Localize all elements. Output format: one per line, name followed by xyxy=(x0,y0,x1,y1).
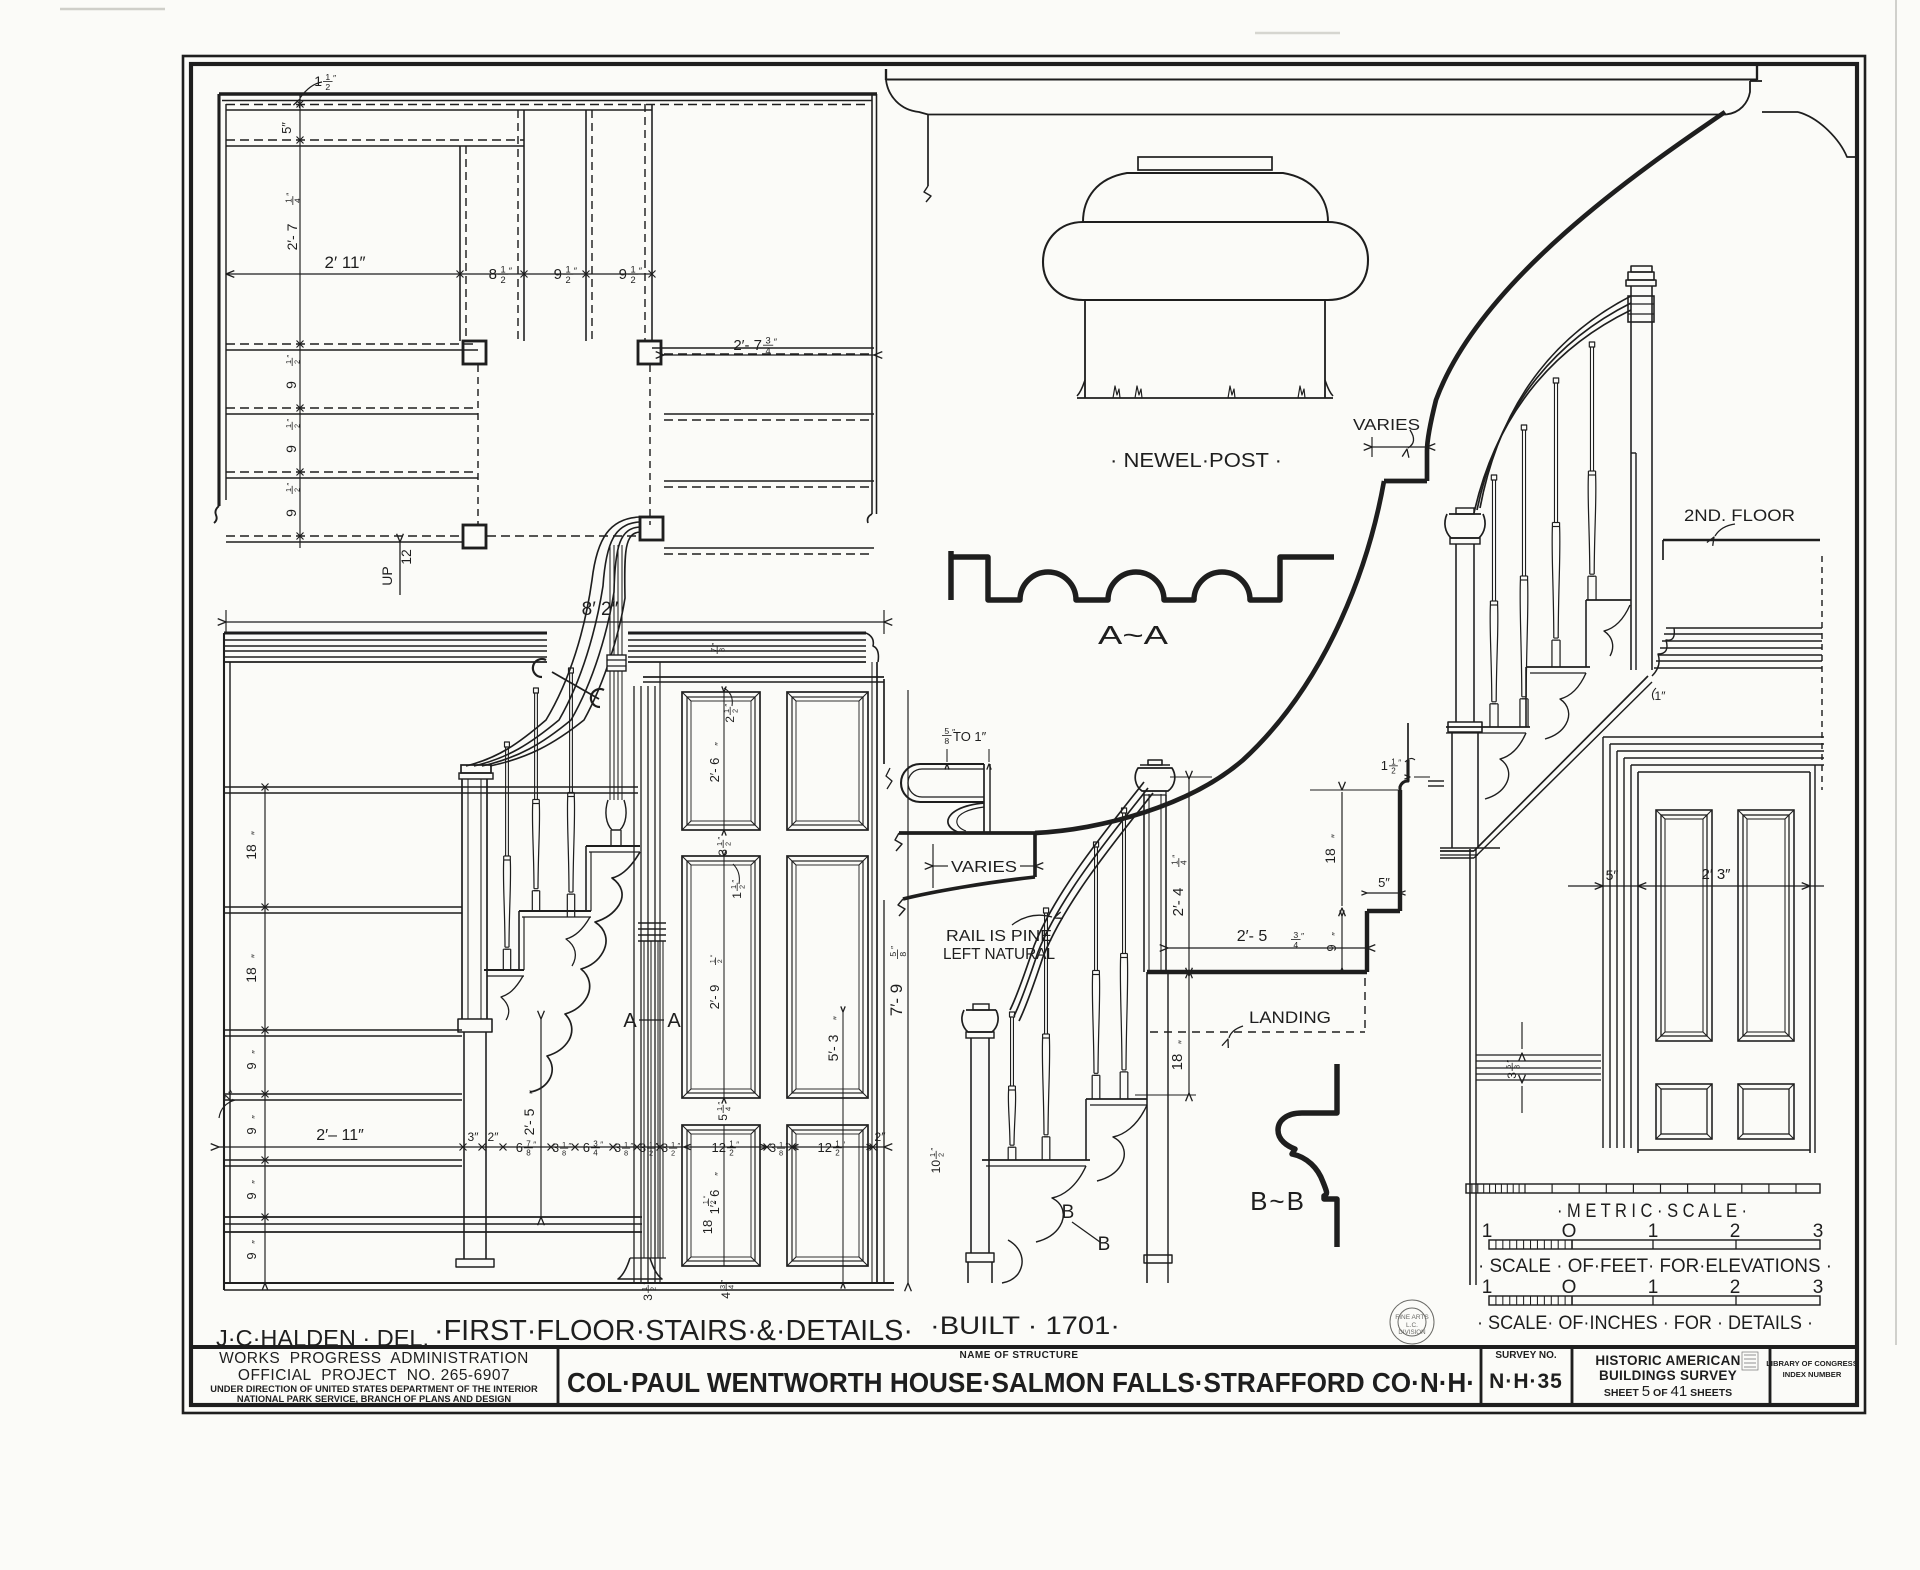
svg-text:1: 1 xyxy=(1648,1221,1659,1242)
svg-text:L.C.: L.C. xyxy=(1406,1322,1418,1329)
svg-text:LEFT NATURAL: LEFT NATURAL xyxy=(943,946,1055,963)
svg-text:1: 1 xyxy=(1648,1277,1659,1298)
svg-text:5″: 5″ xyxy=(279,122,294,134)
svg-text:A~A: A~A xyxy=(1098,620,1169,650)
svg-text:5′- 3: 5′- 3 xyxy=(825,1034,841,1061)
svg-text:4: 4 xyxy=(1180,860,1189,865)
svg-text:18: 18 xyxy=(243,967,259,983)
svg-text:12: 12 xyxy=(712,1140,726,1155)
svg-text:A: A xyxy=(623,1010,637,1032)
svg-text:8: 8 xyxy=(624,1148,628,1157)
svg-text:· M E T R I C · S C A L E ·: · M E T R I C · S C A L E · xyxy=(1557,1201,1747,1222)
svg-text:″: ″ xyxy=(285,482,294,485)
svg-text:2″: 2″ xyxy=(488,1130,500,1144)
svg-text:NATIONAL PARK SERVICE, BRANCH: NATIONAL PARK SERVICE, BRANCH OF PLANS A… xyxy=(237,1394,512,1404)
svg-text:5: 5 xyxy=(944,726,949,736)
svg-text:8: 8 xyxy=(1512,1065,1521,1069)
svg-text:″: ″ xyxy=(889,946,899,949)
svg-text:″: ″ xyxy=(929,1147,938,1150)
svg-text:9: 9 xyxy=(283,445,299,453)
svg-text:18: 18 xyxy=(1169,1054,1186,1071)
svg-text:″: ″ xyxy=(285,193,294,196)
svg-text:2′– 11″: 2′– 11″ xyxy=(316,1127,364,1144)
svg-text:″: ″ xyxy=(250,831,262,835)
svg-text:1: 1 xyxy=(631,265,636,275)
svg-text:2: 2 xyxy=(730,709,739,713)
svg-text:″: ″ xyxy=(1171,855,1180,858)
svg-text:RAIL IS PINE: RAIL IS PINE xyxy=(946,928,1052,945)
svg-text:2: 2 xyxy=(1730,1277,1741,1298)
svg-text:8: 8 xyxy=(944,736,949,746)
svg-text:J·C·HALDEN · DEL.: J·C·HALDEN · DEL. xyxy=(216,1325,429,1351)
svg-text:″: ″ xyxy=(631,1141,634,1150)
svg-text:· SCALE· OF·INCHES · FOR · DET: · SCALE· OF·INCHES · FOR · DETAILS · xyxy=(1477,1313,1813,1334)
svg-text:B~B: B~B xyxy=(1250,1186,1306,1216)
svg-text:HISTORIC AMERICAN: HISTORIC AMERICAN xyxy=(1595,1353,1740,1368)
svg-text:″: ″ xyxy=(285,418,294,421)
svg-text:8: 8 xyxy=(526,1149,531,1158)
svg-text:8: 8 xyxy=(562,1148,566,1157)
svg-text:3: 3 xyxy=(641,1294,655,1301)
svg-text:NAME OF STRUCTURE: NAME OF STRUCTURE xyxy=(959,1350,1078,1361)
svg-text:″: ″ xyxy=(569,1141,572,1150)
svg-text:10: 10 xyxy=(929,1160,943,1174)
svg-text:″: ″ xyxy=(714,1172,725,1176)
svg-text:9: 9 xyxy=(554,266,562,283)
svg-text:1: 1 xyxy=(1482,1277,1493,1298)
svg-text:INDEX NUMBER: INDEX NUMBER xyxy=(1783,1370,1842,1379)
svg-text:2: 2 xyxy=(501,275,506,285)
svg-text:2: 2 xyxy=(737,885,746,889)
svg-text:8: 8 xyxy=(779,1148,783,1157)
svg-text:1: 1 xyxy=(1171,860,1180,865)
svg-text:· NEWEL·POST ·: · NEWEL·POST · xyxy=(1110,450,1282,472)
svg-text:2: 2 xyxy=(717,959,724,963)
svg-text:LANDING: LANDING xyxy=(1249,1008,1331,1027)
svg-text:″: ″ xyxy=(251,1115,262,1119)
svg-text:″: ″ xyxy=(1398,758,1401,767)
svg-text:9: 9 xyxy=(244,1127,259,1134)
svg-text:1: 1 xyxy=(730,892,744,899)
svg-text:5″: 5″ xyxy=(1378,875,1390,890)
svg-text:4: 4 xyxy=(726,1285,735,1289)
svg-text:· SCALE · OF·FEET· FOR·ELEVATI: · SCALE · OF·FEET· FOR·ELEVATIONS · xyxy=(1478,1256,1832,1277)
svg-text:18: 18 xyxy=(1322,848,1338,864)
svg-text:6: 6 xyxy=(516,1140,523,1155)
svg-text:2: 2 xyxy=(729,1149,734,1158)
svg-text:3: 3 xyxy=(593,1140,598,1149)
svg-text:″: ″ xyxy=(842,1140,845,1149)
svg-text:2′- 7: 2′- 7 xyxy=(733,337,762,354)
svg-text:2′- 7: 2′- 7 xyxy=(284,223,300,250)
svg-text:1: 1 xyxy=(566,265,571,275)
svg-text:1: 1 xyxy=(285,198,294,203)
svg-text:1: 1 xyxy=(835,1140,840,1149)
svg-text:2: 2 xyxy=(292,424,301,428)
svg-text:A: A xyxy=(667,1010,681,1032)
svg-text:4: 4 xyxy=(766,346,771,356)
svg-text:VARIES: VARIES xyxy=(951,859,1017,876)
svg-text:B: B xyxy=(1062,1202,1075,1223)
svg-text:″: ″ xyxy=(710,642,719,645)
svg-text:12: 12 xyxy=(818,1140,832,1155)
svg-text:2: 2 xyxy=(710,1200,717,1204)
svg-text:2: 2 xyxy=(1730,1221,1741,1242)
svg-text:3: 3 xyxy=(614,1141,621,1155)
svg-text:″: ″ xyxy=(251,1240,262,1244)
svg-text:3″: 3″ xyxy=(468,1130,480,1144)
svg-text:2: 2 xyxy=(649,1148,653,1157)
svg-text:3: 3 xyxy=(1293,930,1298,940)
svg-text:6: 6 xyxy=(583,1140,590,1155)
svg-text:8: 8 xyxy=(898,952,908,957)
svg-text:12: 12 xyxy=(398,549,414,565)
svg-text:2′- 4: 2′- 4 xyxy=(1170,888,1187,917)
svg-text:4: 4 xyxy=(593,1149,598,1158)
svg-text:9: 9 xyxy=(244,1062,259,1069)
svg-text:″: ″ xyxy=(285,354,294,357)
svg-text:1: 1 xyxy=(501,265,506,275)
svg-text:9: 9 xyxy=(283,509,299,517)
svg-text:FINE ARTS: FINE ARTS xyxy=(1395,1314,1429,1321)
svg-text:8: 8 xyxy=(717,648,726,652)
svg-text:SURVEY NO.: SURVEY NO. xyxy=(1495,1350,1557,1361)
svg-text:2: 2 xyxy=(631,275,636,285)
svg-text:9: 9 xyxy=(619,266,627,283)
svg-text:″: ″ xyxy=(600,1140,603,1149)
svg-text:″: ″ xyxy=(1331,932,1342,936)
svg-text:2′ 3″: 2′ 3″ xyxy=(1702,866,1732,883)
svg-text:5: 5 xyxy=(716,1114,730,1121)
svg-text:″: ″ xyxy=(786,1141,789,1150)
svg-text:WORKS PROGRESS ADMINISTRATIO: WORKS PROGRESS ADMINISTRATION xyxy=(219,1350,529,1367)
svg-text:7′- 9: 7′- 9 xyxy=(887,984,906,1016)
svg-text:3: 3 xyxy=(1813,1221,1824,1242)
svg-text:O: O xyxy=(1562,1277,1577,1298)
svg-text:1: 1 xyxy=(1482,1221,1493,1242)
svg-text:″: ″ xyxy=(251,1180,262,1184)
svg-text:2: 2 xyxy=(1391,767,1396,776)
svg-text:″: ″ xyxy=(251,1050,262,1054)
svg-text:″: ″ xyxy=(832,1016,844,1020)
svg-text:2′- 5: 2′- 5 xyxy=(521,1108,537,1135)
svg-text:18: 18 xyxy=(243,844,259,860)
svg-text:9: 9 xyxy=(244,1192,259,1199)
svg-text:″: ″ xyxy=(736,1140,739,1149)
svg-text:·BUILT · 1701·: ·BUILT · 1701· xyxy=(930,1312,1120,1340)
svg-text:UNDER DIRECTION OF UNITED STAT: UNDER DIRECTION OF UNITED STATES DEPARTM… xyxy=(210,1384,538,1394)
svg-text:9: 9 xyxy=(283,381,299,389)
svg-text:″: ″ xyxy=(730,879,739,882)
svg-text:″: ″ xyxy=(1301,931,1304,941)
svg-text:2: 2 xyxy=(936,1153,945,1157)
svg-text:4: 4 xyxy=(723,1107,732,1111)
svg-text:B: B xyxy=(1098,1234,1111,1255)
svg-text:″: ″ xyxy=(641,1281,650,1284)
svg-text:″: ″ xyxy=(1505,1059,1514,1062)
svg-text:3: 3 xyxy=(1813,1277,1824,1298)
svg-text:1: 1 xyxy=(325,72,330,82)
svg-text:3: 3 xyxy=(769,1141,776,1155)
svg-text:2: 2 xyxy=(292,488,301,492)
svg-text:·FIRST·FLOOR·STAIRS·&·DETAILS·: ·FIRST·FLOOR·STAIRS·&·DETAILS· xyxy=(434,1315,913,1347)
svg-text:3: 3 xyxy=(661,1141,668,1155)
svg-text:4: 4 xyxy=(294,198,303,203)
svg-text:9: 9 xyxy=(244,1252,259,1259)
svg-text:18: 18 xyxy=(700,1220,715,1234)
svg-text:1: 1 xyxy=(729,1140,734,1149)
svg-text:″: ″ xyxy=(716,1101,725,1104)
svg-text:3: 3 xyxy=(766,336,771,346)
svg-text:″: ″ xyxy=(719,1279,728,1282)
svg-text:2: 2 xyxy=(835,1149,840,1158)
svg-text:″: ″ xyxy=(716,836,725,839)
svg-text:LIBRARY OF CONGRESS: LIBRARY OF CONGRESS xyxy=(1766,1359,1858,1368)
svg-text:VARIES: VARIES xyxy=(1353,417,1420,434)
svg-text:2: 2 xyxy=(723,716,737,723)
svg-text:COL·PAUL WENTWORTH HOUSE·SALMO: COL·PAUL WENTWORTH HOUSE·SALMON FALLS·ST… xyxy=(567,1367,1475,1398)
svg-text:″: ″ xyxy=(533,1140,536,1149)
svg-text:″: ″ xyxy=(250,954,262,958)
svg-text:3: 3 xyxy=(639,1141,646,1155)
svg-text:″: ″ xyxy=(678,1141,681,1150)
svg-text:4: 4 xyxy=(1293,940,1298,950)
svg-text:1: 1 xyxy=(1381,758,1388,773)
svg-text:5″: 5″ xyxy=(1606,867,1619,883)
svg-text:2′- 9: 2′- 9 xyxy=(707,985,722,1010)
svg-text:″: ″ xyxy=(1330,834,1342,838)
svg-text:3: 3 xyxy=(552,1141,559,1155)
svg-text:1: 1 xyxy=(314,73,322,89)
svg-text:UP: UP xyxy=(379,566,395,585)
svg-text:O: O xyxy=(1562,1221,1577,1242)
svg-text:DIVISION: DIVISION xyxy=(1398,1329,1425,1336)
svg-text:″: ″ xyxy=(528,1090,540,1094)
svg-text:7: 7 xyxy=(526,1140,531,1149)
svg-text:2ND. FLOOR: 2ND. FLOOR xyxy=(1684,506,1795,525)
svg-text:1: 1 xyxy=(1391,758,1396,767)
svg-text:2″: 2″ xyxy=(875,1130,887,1144)
svg-text:OFFICIAL PROJECT NO. 265-690: OFFICIAL PROJECT NO. 265-6907 xyxy=(238,1367,510,1384)
svg-text:2: 2 xyxy=(671,1148,675,1157)
svg-text:″: ″ xyxy=(656,1141,659,1150)
svg-text:2: 2 xyxy=(648,1287,657,1291)
svg-text:2: 2 xyxy=(566,275,571,285)
svg-text:2′- 6: 2′- 6 xyxy=(707,758,722,783)
svg-text:″: ″ xyxy=(333,73,336,83)
svg-text:BUILDINGS SURVEY: BUILDINGS SURVEY xyxy=(1599,1368,1737,1383)
svg-text:2: 2 xyxy=(292,360,301,364)
svg-text:1″: 1″ xyxy=(1655,689,1667,703)
svg-text:N·H·35: N·H·35 xyxy=(1489,1370,1563,1393)
svg-text:8: 8 xyxy=(489,266,497,283)
svg-text:2: 2 xyxy=(723,842,732,846)
svg-text:5: 5 xyxy=(888,952,898,957)
svg-text:4: 4 xyxy=(719,1292,733,1299)
svg-text:″: ″ xyxy=(1177,1040,1189,1044)
svg-text:2′ 11″: 2′ 11″ xyxy=(324,253,365,272)
svg-text:TO 1″: TO 1″ xyxy=(953,729,987,744)
svg-text:3: 3 xyxy=(1505,1072,1519,1079)
svg-text:″: ″ xyxy=(714,742,725,746)
svg-text:2: 2 xyxy=(325,82,330,92)
svg-text:2′- 5: 2′- 5 xyxy=(1237,928,1268,945)
